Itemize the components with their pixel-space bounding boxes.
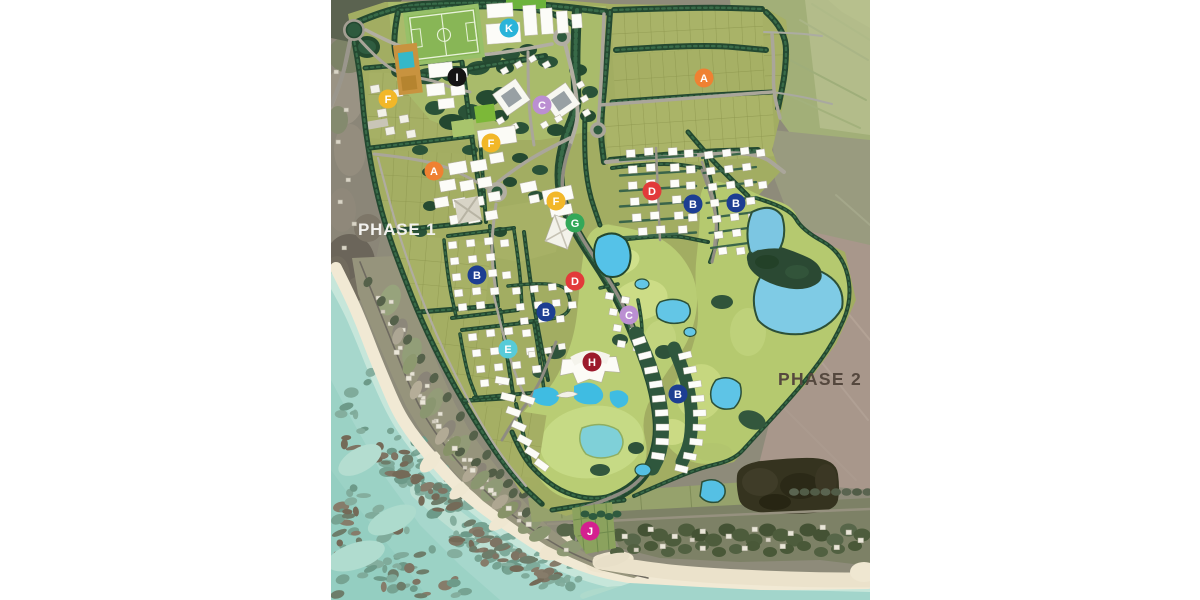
svg-text:E: E	[504, 344, 511, 356]
svg-text:PHASE 1: PHASE 1	[358, 220, 436, 239]
svg-text:F: F	[385, 94, 392, 106]
svg-text:H: H	[588, 357, 596, 369]
svg-text:A: A	[700, 73, 708, 85]
svg-text:D: D	[571, 276, 579, 288]
svg-text:I: I	[455, 72, 458, 84]
svg-text:F: F	[553, 196, 560, 208]
svg-text:C: C	[625, 310, 633, 322]
svg-text:F: F	[488, 138, 495, 150]
svg-text:B: B	[674, 389, 682, 401]
svg-text:B: B	[732, 198, 740, 210]
svg-text:A: A	[430, 166, 438, 178]
svg-text:PHASE 2: PHASE 2	[778, 369, 862, 389]
svg-text:D: D	[648, 186, 656, 198]
svg-text:B: B	[542, 307, 550, 319]
svg-text:G: G	[571, 218, 580, 230]
svg-text:B: B	[689, 199, 697, 211]
svg-text:C: C	[538, 100, 546, 112]
svg-text:B: B	[473, 270, 481, 282]
svg-text:J: J	[587, 526, 593, 538]
svg-text:K: K	[505, 23, 513, 35]
